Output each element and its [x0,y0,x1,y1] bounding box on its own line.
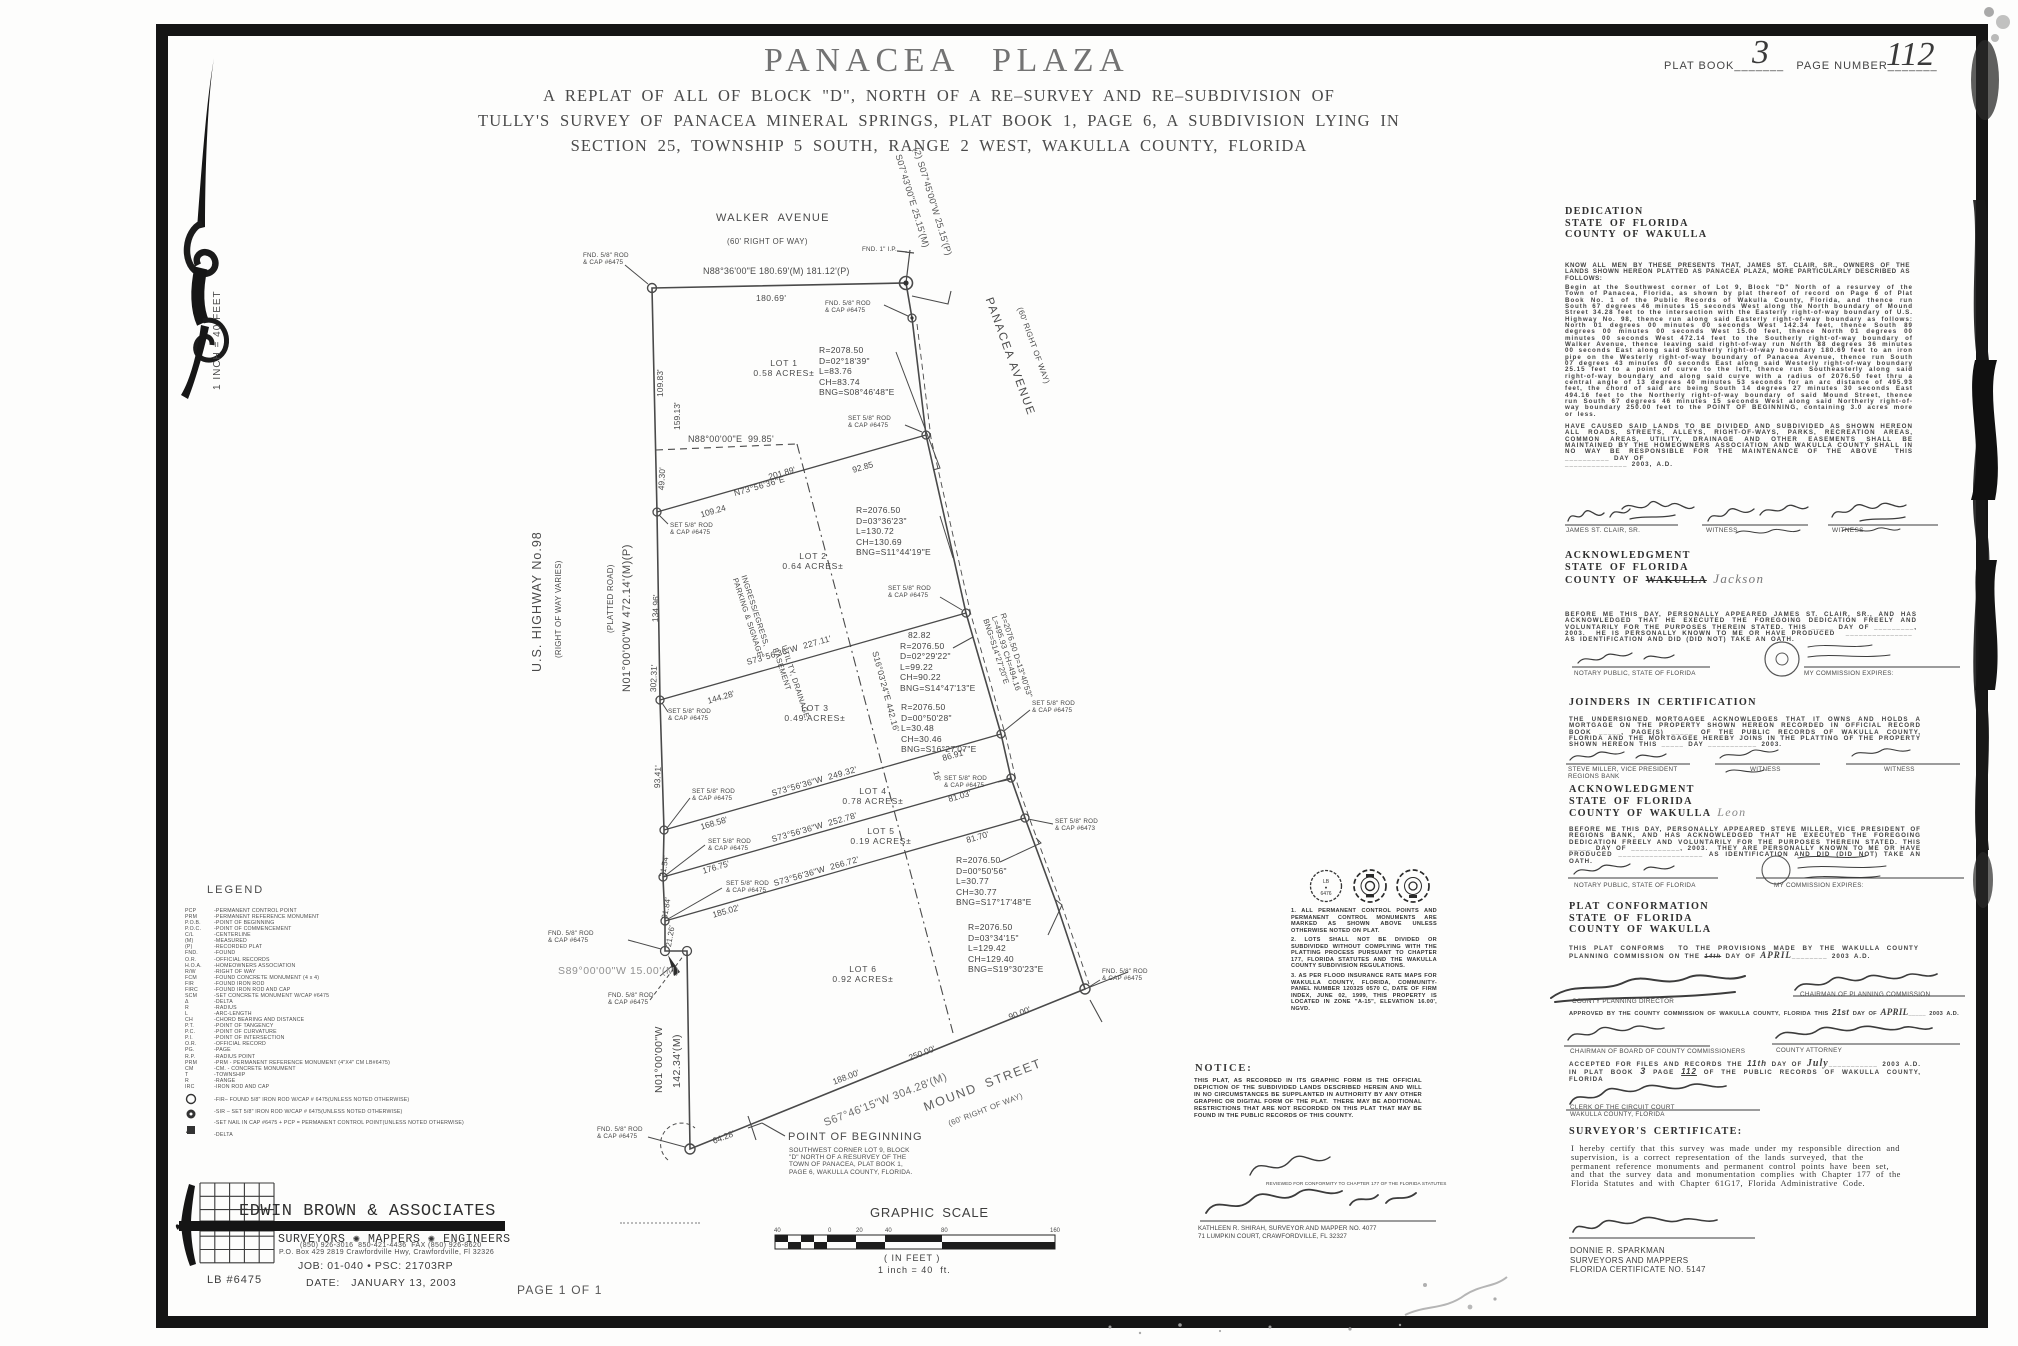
svg-text:●: ● [1325,885,1328,890]
svg-text:40: 40 [885,1228,892,1234]
svg-text:6476: 6476 [1320,891,1331,897]
svg-text:80: 80 [941,1228,948,1234]
svg-text:40: 40 [774,1228,781,1234]
svg-text:0: 0 [828,1228,832,1234]
svg-text:160: 160 [1050,1228,1061,1234]
svg-text:20: 20 [856,1228,863,1234]
